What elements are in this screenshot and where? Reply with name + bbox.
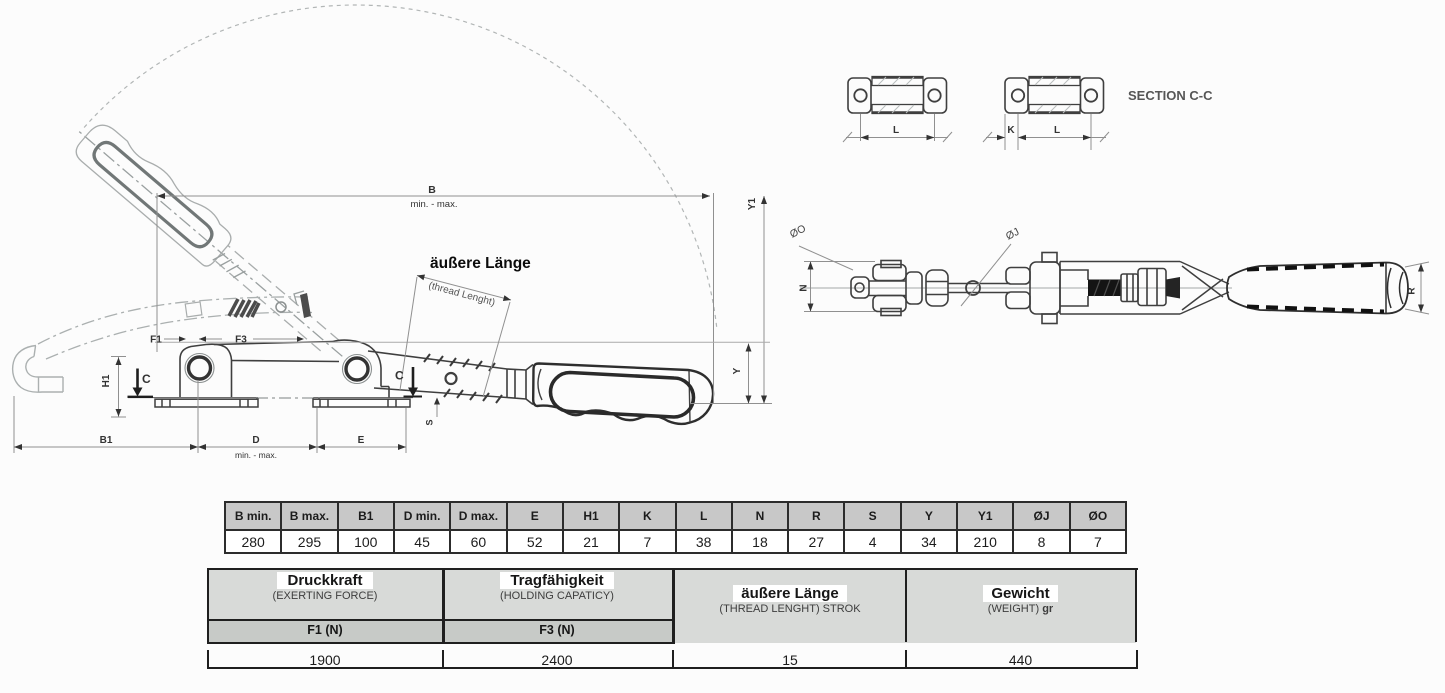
svg-text:R: R [1407,287,1418,295]
svg-text:min. - max.: min. - max. [411,199,458,210]
svg-text:Y: Y [732,367,743,374]
svg-text:S: S [425,419,435,425]
svg-text:C: C [395,369,404,383]
svg-text:SECTION C-C: SECTION C-C [1128,88,1213,103]
svg-text:L: L [893,125,899,136]
svg-text:N: N [799,284,810,291]
svg-text:F1: F1 [150,335,162,346]
svg-text:F3: F3 [235,335,247,346]
svg-text:L: L [1054,125,1060,136]
svg-text:B1: B1 [100,435,113,446]
svg-text:D: D [252,435,259,446]
svg-text:ØO: ØO [788,223,808,241]
svg-text:Y1: Y1 [747,197,758,210]
svg-text:K: K [1007,125,1015,136]
svg-text:H1: H1 [101,374,112,387]
svg-text:B: B [428,184,436,196]
svg-text:äußere Länge: äußere Länge [430,255,531,272]
svg-text:C: C [142,372,151,386]
svg-text:min. - max.: min. - max. [235,450,277,460]
svg-text:E: E [358,435,365,446]
svg-text:ØJ: ØJ [1004,226,1021,243]
svg-text:(thread Lenght): (thread Lenght) [427,280,496,308]
